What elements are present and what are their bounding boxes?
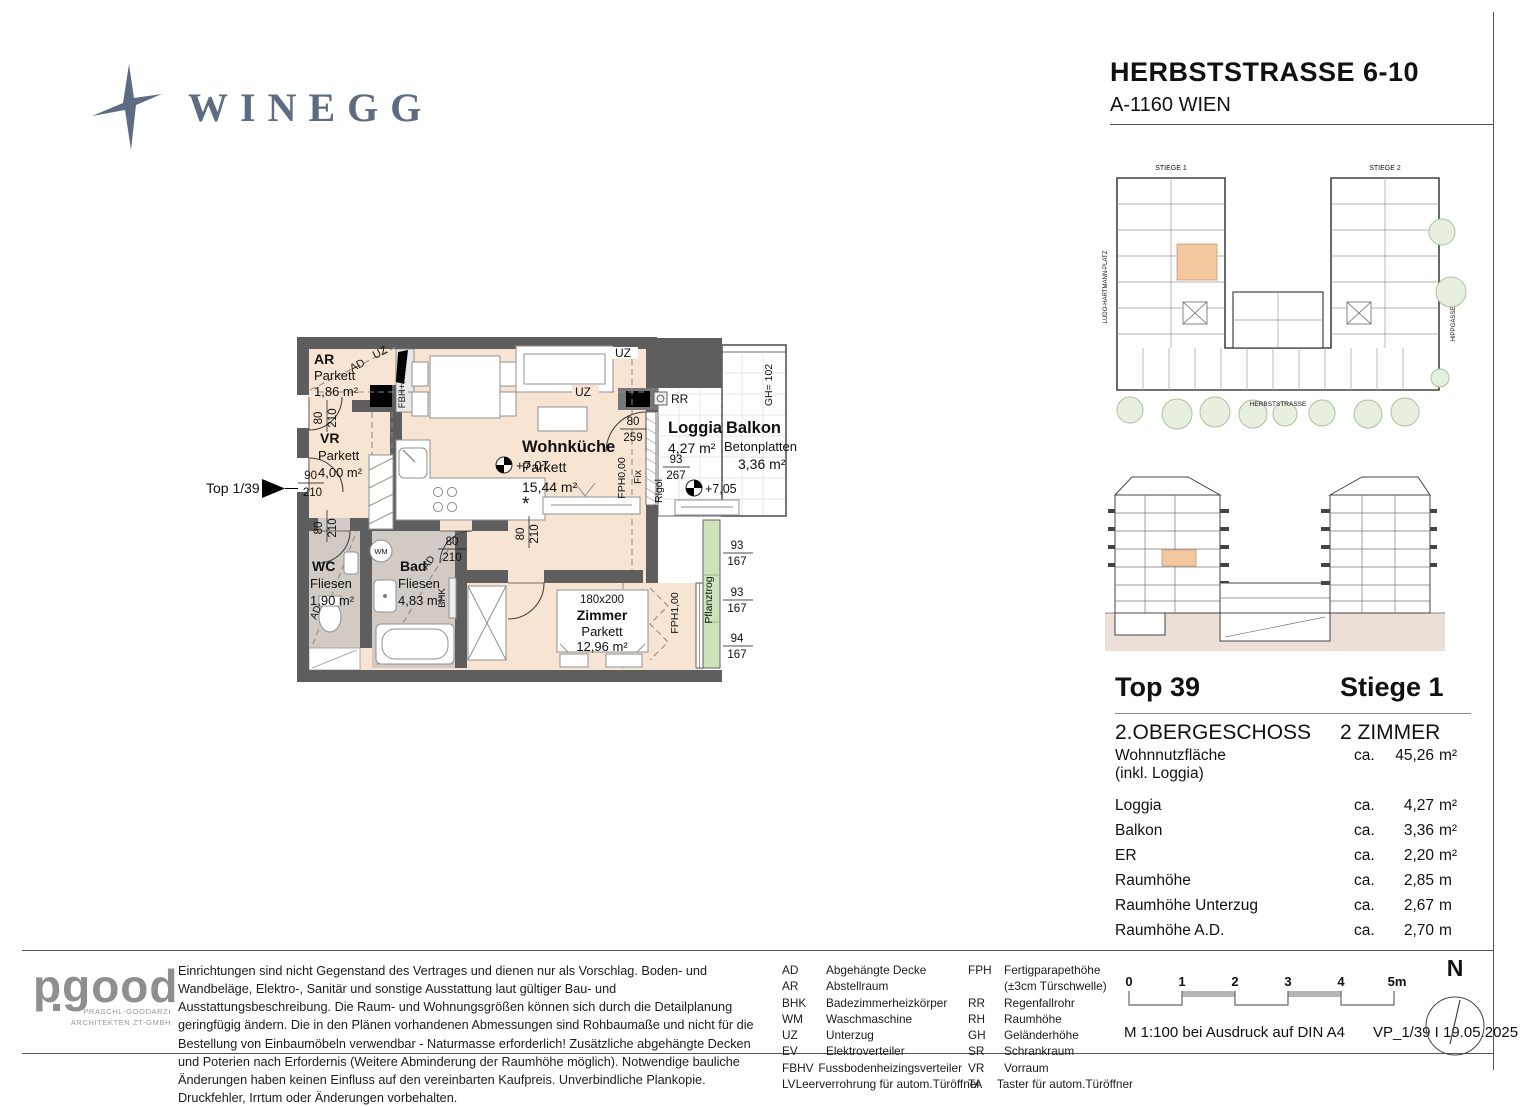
row-label: ER [1115,847,1354,865]
room-finish-zimmer: Parkett [581,624,623,639]
rr-label: RR [671,392,689,406]
row-label: Balkon [1115,822,1354,840]
dim: 80 [446,536,459,548]
row-unit: m² [1434,847,1473,865]
legend-abbr: GH [968,1027,1004,1043]
legend-text: Abgehängte Decke [826,962,926,978]
unit-floor: 2.OBERGESCHOSS [1115,721,1311,745]
legend-text: Raumhöhe [1004,1011,1062,1027]
info-row: Balkon ca. 3,36 m² [1115,822,1473,840]
bed-size-label: 180x200 [580,594,624,606]
stiege2-label: STIEGE 2 [1369,165,1401,172]
legend-text: (±3cm Türschwelle) [1004,978,1107,994]
legend-text: Schrankraum [1004,1043,1074,1059]
room-finish-ar: Parkett [314,368,356,383]
room-name-vr: VR [320,430,339,446]
room-area-balkon: 3,36 m² [738,456,786,472]
dim: 94 [731,633,744,645]
uz-label-1: UZ [575,385,591,399]
street-left-label: LUDO-HARTMANN-PLATZ [1103,250,1109,323]
scale-brackets [1129,991,1394,1005]
legend-abbr: LV [782,1076,796,1092]
row-label: Raumhöhe Unterzug [1115,897,1354,915]
dim: 93 [731,540,744,552]
dim: 210 [327,408,339,427]
dim: 167 [727,556,746,568]
legend-text: Badezimmerheizkörper [826,995,947,1011]
rr-icon [654,392,667,405]
room-name-zimmer: Zimmer [577,607,628,623]
dim: 80 [627,416,640,428]
dining-table [430,356,500,418]
info-row: Loggia ca. 4,27 m² [1115,797,1473,815]
north-label: N [1447,955,1464,981]
row-ca: ca. [1354,922,1384,940]
kitchen-sink [399,448,427,478]
info-row: Wohnnutzfläche(inkl. Loggia) ca. 45,26 m… [1115,747,1473,783]
bhk-label: BHK [437,588,448,608]
scale-tick: 2 [1231,974,1238,989]
legend-text: Unterzug [826,1027,874,1043]
company-name: WINEGG [188,84,433,131]
section-right-building [1330,477,1430,613]
row-value: 3,36 [1384,822,1434,840]
company-logo: WINEGG [92,64,433,150]
dim: 80 [313,412,325,425]
legend-text: Leerverrohrung für autom.Türöffner [796,1076,981,1092]
row-unit: m [1434,922,1473,940]
scale-tick: 5m [1388,974,1407,989]
info-rule [1115,713,1471,714]
room-name-wc: WC [312,558,335,574]
room-name-ar: AR [314,351,334,367]
bathroom-radiator [449,578,456,618]
architect-caption-2: ARCHITEKTEN ZT-GMBH [33,1018,171,1028]
legend-text: Abstellraum [826,978,888,994]
level-main: +7,07 [516,458,549,473]
floor-plan: Top 1/39 AR Parkett 1,86 m² VR Parkett 4… [195,320,825,695]
scale-segment [1288,991,1341,997]
dim: 210 [529,524,541,543]
dim: 80 [313,522,325,535]
room-area-vr: 4,00 m² [318,465,363,480]
room-finish-vr: Parkett [318,448,360,463]
architect-logo-dot [53,1004,60,1011]
scale-tick: 4 [1337,974,1345,989]
coffee-table [538,407,587,431]
footer-rule-top [22,950,1493,951]
legend-text: Fertigparapethöhe [1004,962,1100,978]
highlighted-unit [1177,244,1217,280]
legend-text: Taster für autom.Türöffner [997,1076,1133,1092]
legend-column-1: ADAbgehängte Decke ARAbstellraum BHKBade… [782,962,962,1092]
room-finish-bad: Fliesen [398,576,440,591]
row-label: Raumhöhe [1115,872,1354,890]
dim: 93 [731,587,744,599]
dim: 210 [442,552,461,564]
legend-text: Waschmaschine [826,1011,912,1027]
legend-text: Vorraum [1004,1060,1049,1076]
row-label: Loggia [1115,797,1354,815]
legend-text: Geländerhöhe [1004,1027,1079,1043]
room-name-wohnkueche: Wohnküche [522,438,615,456]
row-value: 2,70 [1384,922,1434,940]
legend-abbr: FBHV [782,1060,818,1076]
legend-abbr: EV [782,1043,826,1059]
room-area-ar: 1,86 m² [314,384,359,399]
dim: 259 [623,432,642,444]
fix-label: Fix [632,469,644,484]
building-section [1100,465,1450,670]
scale-tick: 0 [1125,974,1132,989]
info-row: Raumhöhe A.D. ca. 2,70 m [1115,922,1473,940]
wc-sink [344,552,358,574]
row-unit: m [1434,872,1473,890]
room-name-loggia: Loggia [668,419,723,437]
page-subtitle: A-1160 WIEN [1110,94,1231,117]
legend-abbr: AD [782,962,826,978]
level-marker-main [496,457,512,473]
row-value: 4,27 [1384,797,1434,815]
row-label: Raumhöhe A.D. [1115,922,1354,940]
unit-info-block: Top 39 Stiege 1 2.OBERGESCHOSS 2 ZIMMER … [1113,672,1475,942]
legend-text: Regenfallrohr [1004,995,1075,1011]
unit-number: Top 39 [1115,672,1200,703]
ev-block [370,385,392,407]
room-area-zimmer: 12,96 m² [576,639,628,654]
row-ca: ca. [1354,897,1384,915]
building-outline [1117,178,1439,390]
architect-logo-text: pgood [33,966,171,1007]
room-finish-balkon: Betonplatten [724,439,797,454]
legend-abbr: FPH [968,962,1004,978]
legend-abbr: BHK [782,995,826,1011]
appliance-symbol: * [522,494,530,515]
room-area-wohnkueche: 15,44 m² [522,479,578,495]
dim: 93 [670,454,683,466]
fph0-label: FPH0,00 [616,457,628,499]
planter-label: Pflanztrog [703,576,715,623]
unit-marker: Top 1/39 [206,480,260,496]
dim: 80 [515,528,527,541]
disclaimer-text: Einrichtungen sind nicht Gegenstand des … [178,962,770,1107]
row-ca: ca. [1354,797,1384,815]
legend-text: Fussbodenheizingsverteiler [818,1060,962,1076]
info-row: Raumhöhe Unterzug ca. 2,67 m [1115,897,1473,915]
legend-column-2: FPHFertigparapethöhe (±3cm Türschwelle) … [968,962,1133,1092]
row-value: 2,85 [1384,872,1434,890]
dim: 210 [327,518,339,537]
highlighted-unit-section [1162,550,1196,566]
legend-text: Elektroverteiler [826,1043,905,1059]
row-value: 45,26 [1384,747,1434,783]
uz-label-2: UZ [615,346,631,360]
legend-abbr: SR [968,1043,1004,1059]
room-finish-wc: Fliesen [310,576,352,591]
row-label2: (inkl. Loggia) [1115,765,1354,783]
street-right-label: HIPPGASSE [1451,307,1457,342]
page-title: HERBSTSTRASSE 6-10 [1110,57,1419,88]
scale-bar: 0 1 2 3 4 5m [1125,974,1425,1016]
legend-abbr: UZ [782,1027,826,1043]
row-unit: m² [1434,747,1473,783]
row-value: 2,67 [1384,897,1434,915]
legend-abbr: WM [782,1011,826,1027]
level-balcony: +7,05 [705,482,737,496]
entry-arrow-icon [262,479,285,498]
header-rule [1110,124,1493,125]
legend-abbr: RR [968,995,1004,1011]
page-border-right [1493,12,1494,1070]
scale-segment [1182,991,1235,997]
dim: 267 [666,470,685,482]
legend-abbr: AR [782,978,826,994]
wm-label: WM [374,547,387,556]
architect-logo: pgood PRASCHL-GOODARZI ARCHITEKTEN ZT-GM… [33,966,171,1028]
unit-stair: Stiege 1 [1340,672,1444,703]
level-marker-balcony [686,480,702,496]
fph1-label: FPH1,00 [669,592,681,634]
rigol-label: Rigol [653,479,665,503]
wall-block-core [626,391,650,407]
scale-tick: 3 [1284,974,1291,989]
row-label: Wohnnutzfläche [1115,747,1354,765]
info-row: Raumhöhe ca. 2,85 m [1115,872,1473,890]
row-unit: m² [1434,797,1473,815]
legend-abbr [968,978,1004,994]
winegg-star-icon [92,64,164,150]
gh-label: GH= 102 [763,364,775,406]
north-arrow: N [1408,952,1503,1070]
row-ca: ca. [1354,847,1384,865]
dim: 210 [303,487,322,499]
stiege1-label: STIEGE 1 [1155,165,1187,172]
row-unit: m [1434,897,1473,915]
row-value: 2,20 [1384,847,1434,865]
legend-abbr: TA [968,1076,997,1092]
legend-abbr: RH [968,1011,1004,1027]
row-unit: m² [1434,822,1473,840]
scale-note: M 1:100 bei Ausdruck auf DIN A4 [1124,1024,1345,1041]
legend-abbr: VR [968,1060,1004,1076]
row-ca: ca. [1354,747,1384,783]
north-needle [1450,1000,1460,1044]
north-circle [1426,997,1484,1055]
section-center-block [1220,583,1330,641]
unit-type: 2 ZIMMER [1340,721,1440,745]
dim: 167 [727,603,746,615]
info-row: ER ca. 2,20 m² [1115,847,1473,865]
dim: 90 [304,470,317,482]
fbh-label: FBH+IT+E-V [397,353,408,408]
scale-tick: 1 [1178,974,1185,989]
dim: 167 [727,649,746,661]
street-bottom-label: HERBSTSTRASSE [1250,401,1307,408]
site-plan: STIEGE 1 STIEGE 2 LUDO-HARTMANN-PLATZ HE… [1095,152,1467,458]
row-ca: ca. [1354,822,1384,840]
room-name-balkon: Balkon [726,419,781,437]
row-ca: ca. [1354,872,1384,890]
